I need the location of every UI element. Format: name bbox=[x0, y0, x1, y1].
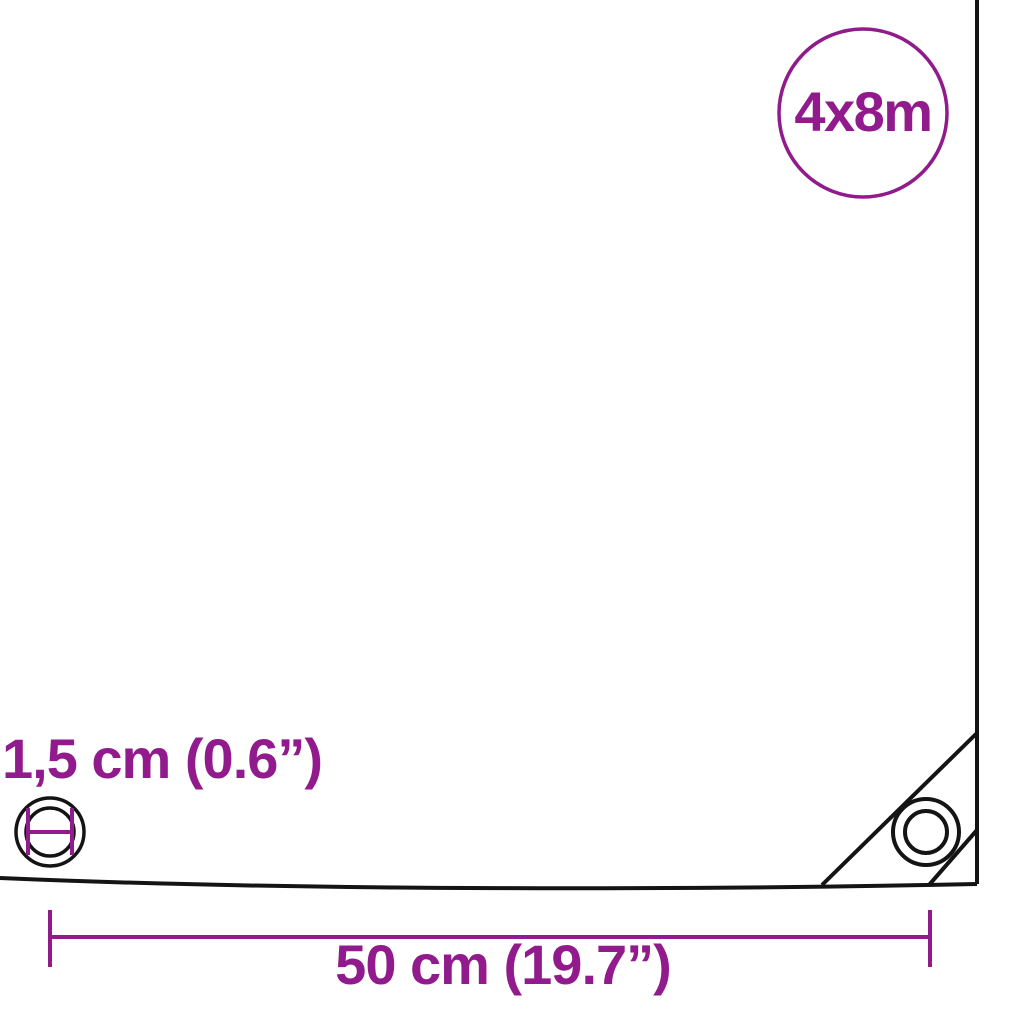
tarpaulin-dimension-diagram: 4x8m 1,5 cm (0.6”) 50 cm (19.7”) bbox=[0, 0, 1024, 1024]
tarp-bottom-edge bbox=[0, 878, 977, 888]
eyelet-spacing-label: 50 cm (19.7”) bbox=[283, 937, 723, 993]
diagram-linework bbox=[0, 0, 1024, 1024]
eyelet-diameter-label: 1,5 cm (0.6”) bbox=[2, 731, 322, 787]
eyelet-diameter-icon bbox=[16, 798, 84, 866]
corner-reinforcement bbox=[822, 733, 977, 885]
corner-fold-diagonal bbox=[822, 733, 977, 885]
eyelet-ring-icon bbox=[893, 799, 959, 865]
size-badge-label: 4x8m bbox=[779, 84, 947, 140]
